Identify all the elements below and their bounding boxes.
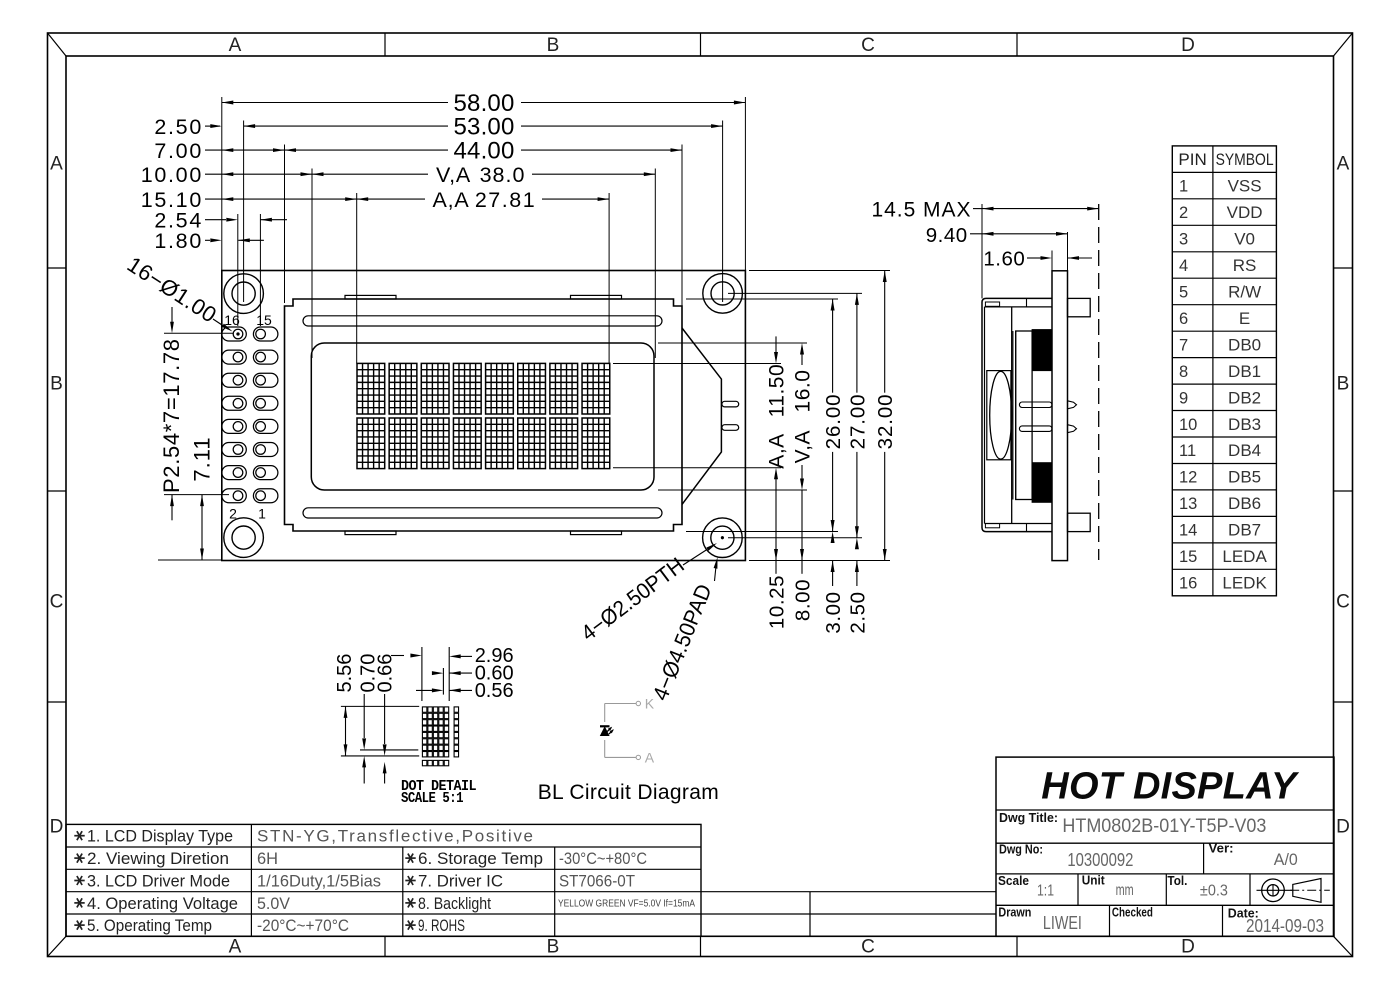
svg-text:27.00: 27.00 xyxy=(846,393,869,449)
svg-text:1. LCD Display Type: 1. LCD Display Type xyxy=(87,827,233,846)
svg-text:A,A: A,A xyxy=(766,433,789,468)
svg-text:1: 1 xyxy=(258,506,266,522)
svg-text:32.00: 32.00 xyxy=(874,393,897,449)
svg-text:DB6: DB6 xyxy=(1228,494,1261,513)
svg-text:15: 15 xyxy=(256,312,272,328)
svg-text:2: 2 xyxy=(1179,204,1188,222)
svg-text:6. Storage Temp: 6. Storage Temp xyxy=(418,849,543,868)
svg-text:STN-YG,Transflective,Positive: STN-YG,Transflective,Positive xyxy=(257,827,533,846)
svg-text:DB7: DB7 xyxy=(1228,521,1261,540)
svg-text:2.50: 2.50 xyxy=(846,591,869,633)
svg-text:DB4: DB4 xyxy=(1228,441,1261,460)
svg-text:Checked: Checked xyxy=(1112,906,1153,920)
svg-text:DB2: DB2 xyxy=(1228,388,1261,407)
svg-text:26.00: 26.00 xyxy=(822,393,845,449)
svg-text:A: A xyxy=(1337,154,1350,175)
svg-text:V,A: V,A xyxy=(436,163,471,187)
svg-text:A: A xyxy=(50,154,63,175)
svg-text:5: 5 xyxy=(1179,284,1188,302)
svg-text:38.0: 38.0 xyxy=(480,163,526,187)
svg-text:1.80: 1.80 xyxy=(154,229,203,253)
svg-text:14: 14 xyxy=(1179,522,1197,540)
svg-text:9.40: 9.40 xyxy=(926,224,968,247)
svg-text:HTM0802B-01Y-T5P-V03: HTM0802B-01Y-T5P-V03 xyxy=(1062,816,1266,837)
svg-text:LEDK: LEDK xyxy=(1222,574,1267,593)
svg-text:B: B xyxy=(1337,374,1350,395)
svg-text:12: 12 xyxy=(1179,469,1197,487)
svg-text:D: D xyxy=(1336,817,1350,838)
svg-text:2014-09-03: 2014-09-03 xyxy=(1246,915,1324,936)
svg-text:D: D xyxy=(50,817,64,838)
svg-text:HOT DISPLAY: HOT DISPLAY xyxy=(1041,766,1300,808)
svg-text:DB0: DB0 xyxy=(1228,335,1261,354)
svg-text:8: 8 xyxy=(1179,363,1188,381)
svg-text:9. ROHS: 9. ROHS xyxy=(418,916,465,935)
svg-text:7: 7 xyxy=(1179,336,1188,354)
svg-text:C: C xyxy=(1336,592,1350,613)
svg-text:0.66: 0.66 xyxy=(375,654,397,693)
svg-text:Drawn: Drawn xyxy=(998,906,1031,920)
svg-text:V,A: V,A xyxy=(792,430,815,463)
svg-text:2.50: 2.50 xyxy=(154,115,203,139)
svg-text:C: C xyxy=(50,592,64,613)
svg-text:Unit: Unit xyxy=(1082,874,1106,888)
svg-text:LEDA: LEDA xyxy=(1222,547,1267,566)
svg-text:10.00: 10.00 xyxy=(141,163,203,187)
svg-text:D: D xyxy=(1181,35,1195,56)
svg-text:8.00: 8.00 xyxy=(792,579,815,621)
svg-text:53.00: 53.00 xyxy=(453,114,514,141)
svg-text:6H: 6H xyxy=(257,849,278,868)
svg-text:1/16Duty,1/5Bias: 1/16Duty,1/5Bias xyxy=(257,872,381,891)
svg-text:C: C xyxy=(861,937,875,958)
svg-text:PIN: PIN xyxy=(1178,150,1206,169)
svg-text:9: 9 xyxy=(1179,389,1188,407)
svg-text:SCALE 5:1: SCALE 5:1 xyxy=(401,791,464,807)
svg-text:A,A: A,A xyxy=(432,188,469,212)
svg-text:BL Circuit Diagram: BL Circuit Diagram xyxy=(538,781,719,804)
svg-text:5.56: 5.56 xyxy=(334,654,356,693)
svg-text:P2.54*7=17.78: P2.54*7=17.78 xyxy=(159,339,184,493)
svg-text:VDD: VDD xyxy=(1227,203,1263,222)
svg-text:7.11: 7.11 xyxy=(190,436,215,481)
svg-text:E: E xyxy=(1239,309,1250,328)
svg-text:10: 10 xyxy=(1179,416,1197,434)
svg-text:3: 3 xyxy=(1179,231,1188,249)
svg-text:3.00: 3.00 xyxy=(822,591,845,633)
svg-text:Dwg Title:: Dwg Title: xyxy=(999,811,1058,825)
svg-text:YELLOW GREEN VF=5.0V If=15mA: YELLOW GREEN VF=5.0V If=15mA xyxy=(558,898,695,909)
svg-text:Scale: Scale xyxy=(998,874,1029,888)
svg-text:27.81: 27.81 xyxy=(475,188,536,212)
svg-text:B: B xyxy=(50,374,63,395)
svg-text:1: 1 xyxy=(1179,178,1188,196)
svg-text:A: A xyxy=(229,35,242,56)
svg-text:16: 16 xyxy=(1179,575,1197,593)
svg-text:DB1: DB1 xyxy=(1228,362,1261,381)
svg-text:5.0V: 5.0V xyxy=(257,894,291,913)
svg-text:A/0: A/0 xyxy=(1274,850,1298,869)
svg-text:LIWEI: LIWEI xyxy=(1043,912,1082,933)
svg-text:Dwg No:: Dwg No: xyxy=(999,843,1043,857)
svg-text:V0: V0 xyxy=(1234,230,1255,249)
svg-text:4. Operating Voltage: 4. Operating Voltage xyxy=(87,894,238,913)
svg-text:5. Operating Temp: 5. Operating Temp xyxy=(87,916,212,935)
svg-text:RS: RS xyxy=(1233,256,1257,275)
svg-text:2: 2 xyxy=(229,506,237,522)
svg-text:6: 6 xyxy=(1179,310,1188,328)
svg-text:K: K xyxy=(645,696,655,712)
svg-text:A: A xyxy=(229,937,242,958)
svg-text:4: 4 xyxy=(1179,257,1188,275)
svg-text:15: 15 xyxy=(1179,548,1197,566)
svg-text:VSS: VSS xyxy=(1228,177,1262,196)
svg-text:16.0: 16.0 xyxy=(792,370,815,413)
svg-text:13: 13 xyxy=(1179,495,1197,513)
svg-text:-30°C~+80°C: -30°C~+80°C xyxy=(559,849,647,868)
svg-text:8. Backlight: 8. Backlight xyxy=(418,894,491,913)
svg-text:±0.3: ±0.3 xyxy=(1200,883,1228,900)
svg-text:1.60: 1.60 xyxy=(983,248,1025,271)
svg-text:Ver:: Ver: xyxy=(1209,842,1234,856)
svg-text:DB3: DB3 xyxy=(1228,415,1261,434)
svg-text:mm: mm xyxy=(1116,882,1134,899)
svg-text:3. LCD Driver Mode: 3. LCD Driver Mode xyxy=(87,872,230,891)
svg-text:1:1: 1:1 xyxy=(1037,883,1054,900)
svg-text:11.50: 11.50 xyxy=(766,364,789,418)
svg-text:D: D xyxy=(1181,937,1195,958)
svg-text:ST7066-0T: ST7066-0T xyxy=(559,872,635,891)
svg-text:SYMBOL: SYMBOL xyxy=(1216,150,1274,169)
svg-text:10.25: 10.25 xyxy=(766,575,789,629)
svg-text:DB5: DB5 xyxy=(1228,468,1261,487)
svg-text:C: C xyxy=(861,35,875,56)
svg-text:0.56: 0.56 xyxy=(475,680,514,702)
svg-text:B: B xyxy=(547,35,560,56)
svg-text:A: A xyxy=(645,750,655,766)
svg-text:-20°C~+70°C: -20°C~+70°C xyxy=(257,916,349,935)
svg-text:14.5 MAX: 14.5 MAX xyxy=(872,199,971,222)
svg-text:44.00: 44.00 xyxy=(453,138,514,165)
svg-text:B: B xyxy=(547,937,560,958)
svg-text:7. Driver IC: 7. Driver IC xyxy=(418,872,503,891)
svg-text:R/W: R/W xyxy=(1228,283,1261,302)
svg-text:2. Viewing Diretion: 2. Viewing Diretion xyxy=(87,849,229,868)
svg-text:7.00: 7.00 xyxy=(154,139,203,163)
svg-text:11: 11 xyxy=(1179,442,1196,460)
svg-text:10300092: 10300092 xyxy=(1067,849,1133,870)
svg-text:Tol.: Tol. xyxy=(1167,874,1187,888)
